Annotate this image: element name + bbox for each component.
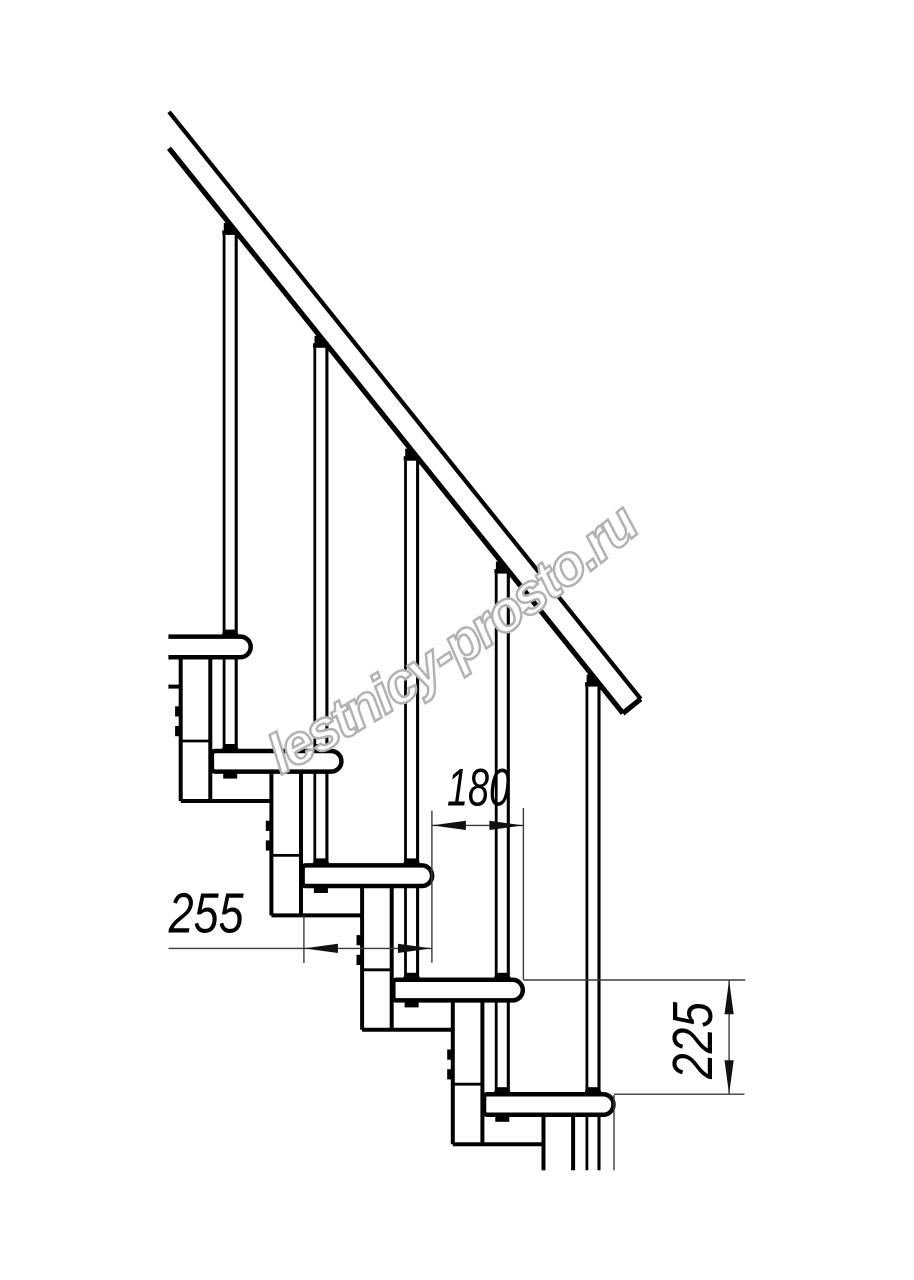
svg-text:225: 225 [661,1002,725,1080]
svg-text:255: 255 [168,882,244,946]
svg-text:180: 180 [447,759,510,818]
